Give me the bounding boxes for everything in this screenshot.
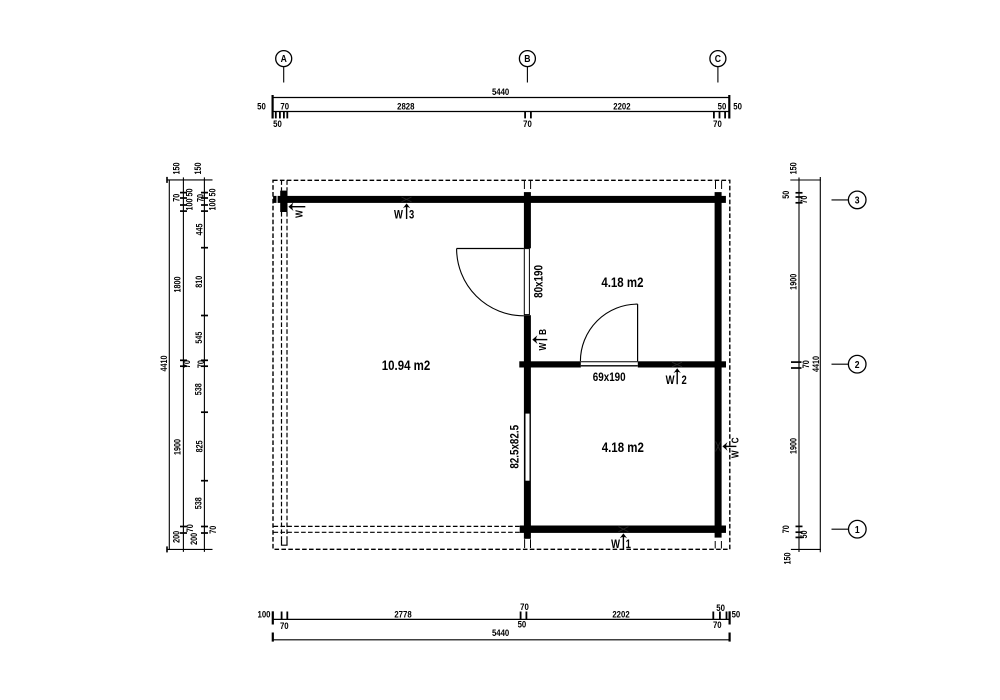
svg-text:70: 70 bbox=[196, 194, 206, 202]
svg-text:100 50: 100 50 bbox=[185, 188, 195, 211]
svg-text:1: 1 bbox=[626, 538, 631, 551]
svg-text:A: A bbox=[281, 53, 287, 65]
svg-text:2828: 2828 bbox=[397, 101, 414, 112]
svg-text:150: 150 bbox=[783, 552, 793, 564]
svg-text:70: 70 bbox=[713, 118, 722, 129]
svg-text:4.18 m2: 4.18 m2 bbox=[601, 274, 643, 290]
svg-text:50: 50 bbox=[799, 530, 809, 538]
svg-text:445: 445 bbox=[195, 223, 205, 235]
svg-text:2: 2 bbox=[855, 359, 860, 371]
svg-text:150: 150 bbox=[789, 162, 799, 174]
svg-text:825: 825 bbox=[195, 440, 205, 452]
svg-text:100: 100 bbox=[258, 609, 271, 620]
svg-text:5440: 5440 bbox=[492, 627, 509, 638]
svg-text:69x190: 69x190 bbox=[593, 371, 626, 384]
svg-text:80x190: 80x190 bbox=[533, 265, 546, 298]
svg-text:50: 50 bbox=[718, 101, 727, 112]
svg-text:82.5x82.5: 82.5x82.5 bbox=[509, 425, 522, 469]
svg-text:50: 50 bbox=[781, 190, 791, 198]
svg-text:70: 70 bbox=[172, 193, 182, 201]
svg-text:538: 538 bbox=[194, 497, 204, 509]
svg-text:70: 70 bbox=[185, 524, 195, 532]
svg-text:1900: 1900 bbox=[789, 438, 799, 454]
svg-text:70: 70 bbox=[781, 525, 791, 533]
svg-text:50: 50 bbox=[733, 101, 742, 112]
svg-text:70: 70 bbox=[196, 360, 206, 368]
svg-text:5440: 5440 bbox=[492, 86, 509, 97]
svg-text:W: W bbox=[394, 209, 403, 222]
svg-text:2202: 2202 bbox=[613, 101, 630, 112]
svg-text:1900: 1900 bbox=[789, 273, 799, 289]
svg-text:70: 70 bbox=[183, 360, 193, 368]
svg-text:2202: 2202 bbox=[612, 609, 629, 620]
svg-text:B: B bbox=[524, 53, 530, 65]
svg-text:4410: 4410 bbox=[159, 355, 169, 371]
svg-text:W: W bbox=[730, 450, 741, 458]
svg-text:70: 70 bbox=[713, 619, 722, 630]
svg-text:C: C bbox=[730, 437, 741, 443]
svg-text:50: 50 bbox=[732, 609, 741, 620]
svg-text:200: 200 bbox=[172, 530, 182, 542]
svg-text:1: 1 bbox=[855, 524, 860, 536]
svg-text:70: 70 bbox=[523, 118, 532, 129]
svg-text:W: W bbox=[537, 342, 548, 350]
svg-text:B: B bbox=[537, 329, 548, 335]
svg-text:2: 2 bbox=[681, 374, 686, 387]
svg-text:70: 70 bbox=[208, 525, 218, 533]
svg-text:50: 50 bbox=[716, 602, 725, 613]
svg-text:70: 70 bbox=[801, 360, 811, 368]
svg-text:150: 150 bbox=[193, 162, 203, 174]
svg-text:1800: 1800 bbox=[173, 276, 183, 292]
svg-text:810: 810 bbox=[195, 275, 205, 287]
svg-text:10.94 m2: 10.94 m2 bbox=[382, 357, 430, 373]
svg-text:4.18 m2: 4.18 m2 bbox=[602, 439, 644, 455]
svg-text:50: 50 bbox=[273, 118, 282, 129]
svg-text:50: 50 bbox=[518, 619, 527, 630]
svg-text:3: 3 bbox=[409, 209, 414, 222]
svg-text:200: 200 bbox=[189, 532, 199, 544]
svg-text:150: 150 bbox=[172, 162, 182, 174]
svg-text:70: 70 bbox=[799, 195, 809, 203]
svg-text:100 50: 100 50 bbox=[208, 188, 218, 211]
svg-text:545: 545 bbox=[195, 331, 205, 343]
svg-text:70: 70 bbox=[280, 101, 289, 112]
svg-text:W: W bbox=[611, 538, 620, 551]
svg-text:70: 70 bbox=[520, 601, 529, 612]
svg-text:1900: 1900 bbox=[173, 439, 183, 455]
svg-text:50: 50 bbox=[257, 101, 266, 112]
svg-text:4410: 4410 bbox=[811, 356, 821, 372]
svg-text:70: 70 bbox=[280, 620, 289, 631]
svg-text:3: 3 bbox=[855, 195, 860, 207]
svg-text:538: 538 bbox=[194, 383, 204, 395]
svg-text:2778: 2778 bbox=[394, 609, 411, 620]
svg-text:W: W bbox=[294, 210, 305, 218]
svg-text:C: C bbox=[715, 53, 721, 65]
svg-text:W: W bbox=[666, 374, 675, 387]
